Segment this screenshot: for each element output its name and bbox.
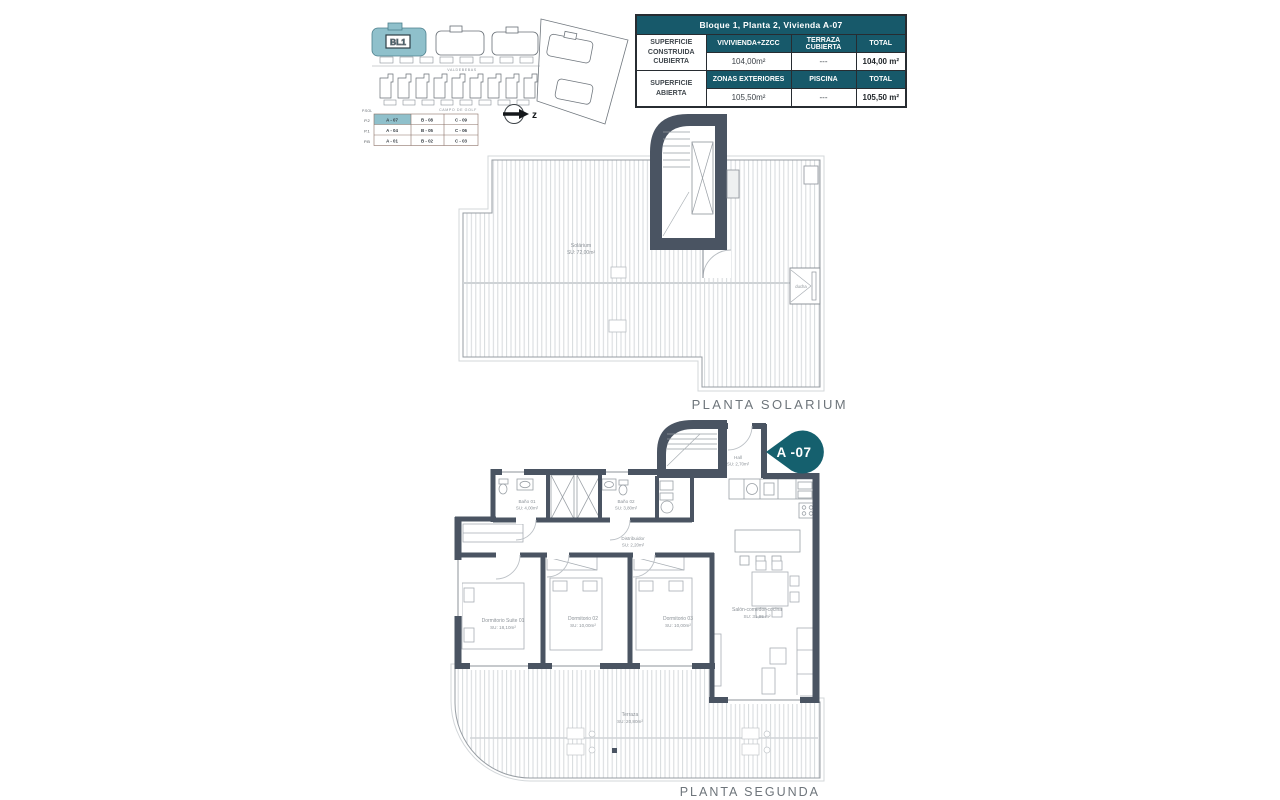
planta-solarium-title: PLANTA SOLARIUM xyxy=(692,397,848,412)
unit-badge-label: A -07 xyxy=(776,445,811,460)
summary-value: --- xyxy=(791,89,856,108)
unit-badge: A -07 xyxy=(766,431,824,474)
svg-text:Solárium: Solárium xyxy=(571,243,591,249)
site-buildings-row1: BL1 xyxy=(372,23,538,56)
summary-table: Bloque 1, Planta 2, Vivienda A-07 SUPERF… xyxy=(635,14,907,108)
svg-text:Dormitorio 03: Dormitorio 03 xyxy=(663,616,693,622)
svg-text:SU: 10,00m²: SU: 10,00m² xyxy=(665,623,691,628)
summary-group-label: SUPERFICIE CONSTRUIDA CUBIERTA xyxy=(636,35,706,71)
segunda-plan: Baño 01 SU: 4,00m² Baño 02 SU: 3,80m² Ha… xyxy=(440,418,925,800)
solarium-plan: ducha Solárium SU: 72,00m² PLANTA SOLA xyxy=(440,108,925,420)
street-label-1: VALDEBEBAS xyxy=(447,68,477,72)
terrace-post xyxy=(612,748,617,753)
svg-text:Hall: Hall xyxy=(734,455,742,460)
summary-value: 104,00m² xyxy=(706,53,791,71)
svg-text:SU: 10,00m²: SU: 10,00m² xyxy=(570,623,596,628)
svg-text:SU: 18,10m²: SU: 18,10m² xyxy=(490,625,516,630)
svg-text:Dormitorio Suite 01: Dormitorio Suite 01 xyxy=(482,618,525,624)
summary-header: TOTAL xyxy=(856,71,906,89)
stairwell xyxy=(650,114,739,250)
legend-cell: A - 01 xyxy=(386,139,398,144)
legend-title: P.SOL xyxy=(362,109,372,113)
legend-floor: P.B xyxy=(364,139,370,144)
svg-text:Dormitorio 02: Dormitorio 02 xyxy=(568,616,598,622)
legend-floor: P.2 xyxy=(364,118,370,123)
summary-value: --- xyxy=(791,53,856,71)
bl1-label: BL1 xyxy=(390,37,406,47)
solarium-deck xyxy=(459,156,824,391)
svg-text:SU: 4,00m²: SU: 4,00m² xyxy=(516,506,539,511)
svg-text:Salón-comedor-cocina: Salón-comedor-cocina xyxy=(732,607,782,613)
summary-header: TERRAZA CUBIERTA xyxy=(791,35,856,53)
legend-cell: B - 02 xyxy=(421,139,434,144)
legend-cell: A - 07 xyxy=(386,118,398,123)
svg-text:SU: 3,80m²: SU: 3,80m² xyxy=(615,506,638,511)
summary-total: 105,50 m² xyxy=(856,89,906,108)
summary-header: PISCINA xyxy=(791,71,856,89)
ac-unit xyxy=(727,170,739,198)
svg-text:Baño 02: Baño 02 xyxy=(617,499,635,504)
summary-header: VIVIVIENDA+ZZCC xyxy=(706,35,791,53)
svg-text:SU: 2,20m²: SU: 2,20m² xyxy=(622,543,645,548)
planta-segunda-title: PLANTA SEGUNDA xyxy=(680,785,820,799)
room-label-bano01: Baño 01 SU: 4,00m² xyxy=(516,499,539,511)
summary-title: Bloque 1, Planta 2, Vivienda A-07 xyxy=(636,15,906,35)
summary-group-label: SUPERFICIE ABIERTA xyxy=(636,71,706,108)
legend-cell: A - 04 xyxy=(386,128,398,133)
building-block-bl1: BL1 xyxy=(372,23,426,56)
svg-text:Distribuidor: Distribuidor xyxy=(621,536,645,541)
svg-text:SU: 72,00m²: SU: 72,00m² xyxy=(567,250,595,256)
room-label-solarium: Solárium SU: 72,00m² xyxy=(567,243,595,256)
site-parking-row2 xyxy=(384,100,529,105)
room-label-bano02: Baño 02 SU: 3,80m² xyxy=(615,499,638,511)
site-parking-row1 xyxy=(380,57,533,63)
floorplan-sheet: BL1 VALDEBEBAS xyxy=(0,0,1280,800)
legend-cell: B - 05 xyxy=(421,128,434,133)
stairwell xyxy=(657,420,727,478)
summary-header: TOTAL xyxy=(856,35,906,53)
svg-text:SU: 2,70m²: SU: 2,70m² xyxy=(727,462,750,467)
legend-floor: P.1 xyxy=(364,129,370,134)
summary-value: 105,50m² xyxy=(706,89,791,108)
svg-text:Baño 01: Baño 01 xyxy=(518,499,536,504)
svg-text:SU: 20,80m²: SU: 20,80m² xyxy=(617,719,643,724)
shower-label: ducha xyxy=(795,284,807,289)
svg-text:SU: 31,95 m²: SU: 31,95 m² xyxy=(743,614,771,619)
shower-box: ducha xyxy=(790,268,820,304)
svg-text:Terraza: Terraza xyxy=(622,712,639,718)
summary-total: 104,00 m² xyxy=(856,53,906,71)
stair-door-swing xyxy=(702,250,731,278)
legend-cell: B - 08 xyxy=(421,118,434,123)
summary-header: ZONAS EXTERIORES xyxy=(706,71,791,89)
site-buildings-row2 xyxy=(380,74,537,98)
room-label-distribuidor: Distribuidor SU: 2,20m² xyxy=(621,536,645,548)
